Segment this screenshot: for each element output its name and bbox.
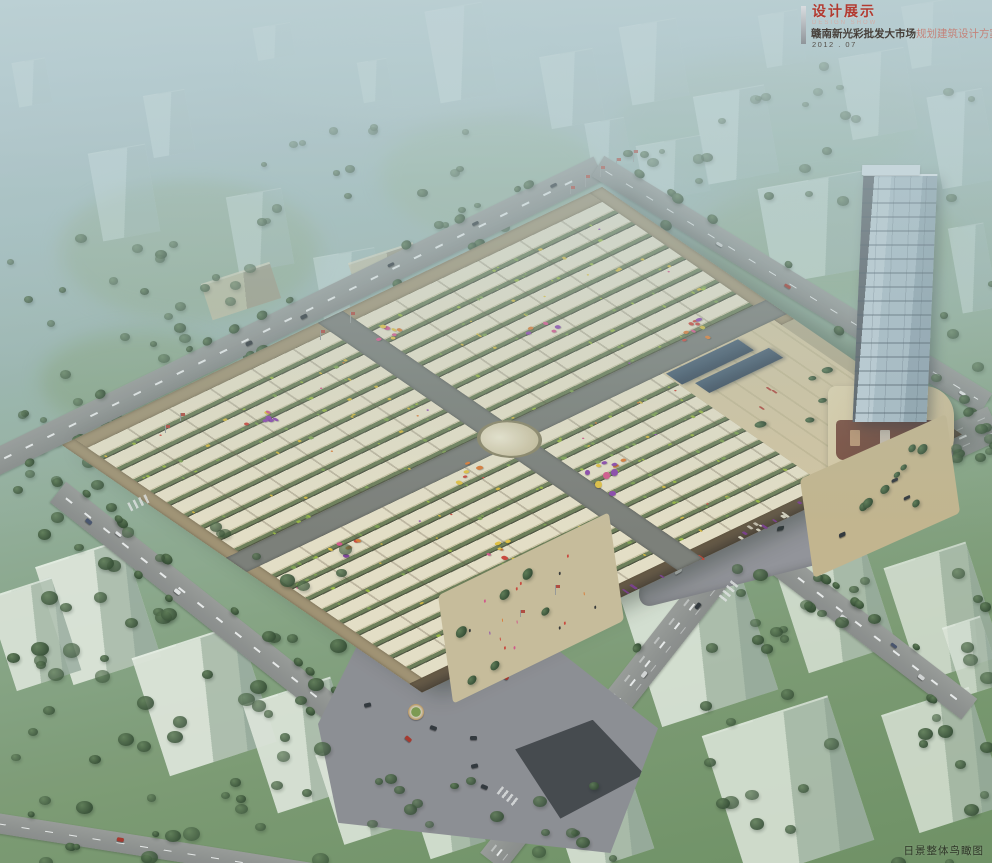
project-name-suffix: 规划建筑设计方案 [916,28,992,40]
car [839,531,846,537]
tree [533,796,547,807]
tree [167,731,183,744]
balloon [611,469,618,476]
balloon [595,481,601,488]
plaza-tree [541,606,550,617]
view-caption: 日景整体鸟瞰图 [904,843,985,858]
tree [308,678,323,690]
tree [280,574,296,587]
plaza-tree [490,660,500,673]
flag [520,610,521,617]
tree [450,783,459,790]
pedestrian [501,619,503,623]
pedestrian [559,626,561,630]
detail-layer [0,0,992,863]
tree [753,569,768,581]
tree [122,527,135,537]
pedestrian [484,599,486,603]
tree [235,804,248,814]
tree [221,792,230,799]
flag [600,166,601,177]
tree [271,781,283,790]
car [891,477,898,483]
plaza-tree [467,673,477,686]
flower-bed-roundel [408,704,424,720]
tree [264,710,273,717]
plaza-tree [862,496,874,510]
tree [984,434,992,444]
tree [868,614,881,624]
pedestrian [514,646,516,650]
tree [466,777,476,785]
tree [39,796,51,806]
tree [700,701,712,711]
flag [616,158,617,167]
tree [781,689,794,700]
pedestrian [595,606,597,610]
balloon [585,470,590,476]
tree [770,627,783,637]
tree [63,643,81,657]
tree [287,634,298,643]
tree [141,851,158,863]
tree [975,453,986,462]
tree [931,374,942,383]
plaza-tree [499,587,510,601]
tree [964,804,979,816]
tree [706,643,718,653]
tree [835,617,850,629]
tree [951,444,962,453]
tree [11,754,21,762]
balloon [609,491,616,496]
tree [750,818,765,830]
tree [938,725,954,737]
tree [375,778,383,784]
plaza-tree [900,463,907,472]
tree [940,312,948,319]
tower-forecourt [800,414,960,578]
tree [89,755,101,764]
tree [961,642,974,652]
tree [817,610,827,618]
tree [295,696,307,706]
tree [277,751,290,762]
flag [585,175,586,187]
tree [860,577,870,585]
tree [147,794,156,801]
tree [780,635,790,643]
tree [800,600,812,610]
project-name: 赣南新光彩批发大市场 [811,28,916,40]
pedestrian [567,554,569,558]
tree [798,784,809,793]
flag [165,425,166,433]
tree [736,589,746,597]
plaza-tree [908,443,917,453]
tree [761,644,773,654]
tree [48,668,64,681]
tree [963,654,978,666]
tree [980,672,992,684]
tree [7,653,20,663]
plaza-tree [879,483,890,496]
tree [945,859,955,863]
tree [339,544,352,555]
tree [589,782,599,790]
tree [183,827,200,841]
tree [704,758,715,767]
tree [236,795,246,803]
tree [74,544,84,552]
tree [95,670,110,682]
tree [94,592,107,603]
tree [280,733,290,741]
tree [541,829,550,836]
pedestrian [504,646,506,650]
tree [732,564,744,573]
tree [609,855,618,862]
tree [980,602,992,611]
tree [137,696,154,710]
tree [43,706,55,716]
tree [202,670,213,679]
tree [302,789,312,797]
tree [161,608,177,621]
tree [750,619,761,627]
pedestrian [516,620,518,624]
tree [985,448,992,455]
tree [118,733,134,746]
tree [849,586,859,594]
tree [566,828,578,838]
tree [137,741,151,752]
pedestrian [559,571,561,575]
tree [297,581,310,592]
tree [726,718,736,726]
pedestrian [583,592,585,596]
tree [165,830,180,842]
pedestrian [520,582,522,586]
crosswalk [127,494,151,512]
tree [785,825,796,833]
project-date: 2012 . 07 [812,40,991,50]
tree [955,760,966,769]
tree [125,618,138,628]
crosswalk [497,786,520,807]
plaza-tree [917,442,928,456]
tree [255,823,265,831]
plaza-tree [911,498,920,509]
tree [41,591,58,605]
page-title: 设计展示 [812,4,991,19]
tree [918,728,933,740]
tree [336,569,346,577]
page-title-english: DESIGN SHOW [812,19,991,27]
pedestrian [489,631,491,635]
flag [320,330,321,340]
flag [180,413,181,421]
tree [932,714,941,722]
tree [76,801,92,814]
tree [31,642,49,656]
tree [412,799,423,808]
tree [716,798,730,809]
tree [173,716,187,727]
tree [367,820,378,829]
title-divider-bar [801,6,806,44]
tree [919,740,928,747]
tree [959,395,970,404]
flag [570,186,571,194]
tree [330,639,347,653]
tree [980,742,992,754]
tree [980,791,989,799]
tree [36,661,46,669]
tree [385,774,397,783]
tree [975,424,987,434]
pedestrian [516,587,518,591]
aerial-rendering-scene: 设计展示 DESIGN SHOW 赣南新光彩批发大市场规划建筑设计方案 2012… [0,0,992,863]
plaza-tree [455,624,467,639]
tree [100,655,109,662]
tree [425,821,434,828]
flag [555,585,556,595]
pedestrian-plaza-southeast [438,512,624,704]
tree [490,811,504,822]
tree [752,635,764,645]
tree [250,680,268,694]
title-block: 设计展示 DESIGN SHOW 赣南新光彩批发大市场规划建筑设计方案 2012… [801,4,991,50]
tree [951,454,962,463]
tree [745,790,758,801]
tree [314,742,332,756]
flag [633,150,634,162]
tree [39,857,52,863]
tree [576,837,590,848]
plaza-tree [522,566,534,581]
balloon [603,472,609,479]
tree [60,603,72,612]
tree [28,728,38,736]
pedestrian [564,621,566,625]
tree [824,738,839,750]
car [904,494,911,500]
flag [350,312,351,323]
tree [155,554,165,562]
project-subtitle: 赣南新光彩批发大市场规划建筑设计方案 [811,28,991,40]
tree [973,595,983,603]
tree [394,786,404,794]
pedestrian [499,637,501,641]
tree [230,778,240,786]
tree [952,568,965,578]
tree [252,553,261,560]
tree [947,329,959,339]
tree [532,846,546,857]
tree [312,853,329,863]
pedestrian [469,628,471,632]
